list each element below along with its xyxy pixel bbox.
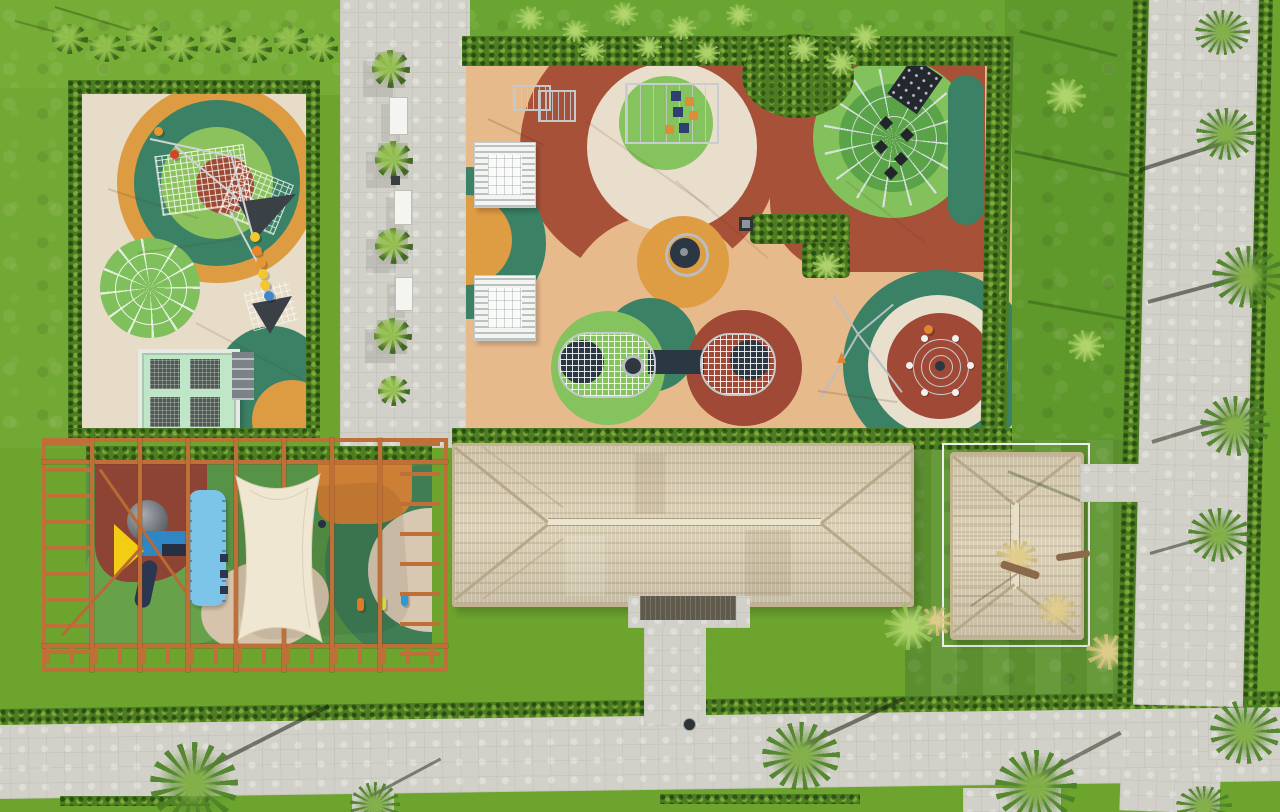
monkey-bars bbox=[538, 90, 576, 122]
waste-bin bbox=[739, 217, 753, 231]
palm-tree bbox=[1210, 700, 1280, 764]
planter-plant bbox=[375, 228, 413, 264]
play-ball-yellow bbox=[250, 232, 260, 242]
grass-tuft bbox=[580, 40, 606, 62]
hedge-island bbox=[750, 214, 850, 244]
palm-tree bbox=[1188, 508, 1250, 562]
walkway-branch bbox=[1080, 464, 1150, 502]
tropical-plant bbox=[238, 35, 272, 63]
plaza-bench bbox=[389, 97, 408, 135]
carousel-knob bbox=[967, 362, 974, 369]
swing-pole bbox=[833, 296, 859, 335]
cube-panel-navy bbox=[673, 107, 683, 117]
palm-tree bbox=[1195, 10, 1250, 55]
carousel-knob bbox=[921, 389, 928, 396]
tropical-plant bbox=[164, 34, 198, 62]
shade-sail bbox=[230, 470, 326, 646]
cube-panel-navy bbox=[671, 91, 681, 101]
teal-edge-strip bbox=[948, 75, 984, 225]
pergola-beam bbox=[378, 438, 382, 672]
main-playground bbox=[466, 60, 1012, 432]
walkway-path bbox=[1133, 0, 1259, 707]
grass-tuft bbox=[636, 36, 662, 58]
tropical-plant bbox=[52, 24, 88, 54]
climbing-cube-frame bbox=[625, 83, 719, 144]
palm-tree bbox=[762, 722, 840, 790]
entrance-recess bbox=[640, 596, 736, 620]
cube-panel-navy bbox=[679, 123, 689, 133]
right-walkway-group bbox=[1117, 0, 1280, 708]
play-ball-orange bbox=[924, 325, 933, 334]
pergola-beam bbox=[42, 460, 448, 464]
pergola-slats-bottom bbox=[46, 648, 440, 664]
dry-grass-tuft bbox=[1038, 594, 1076, 626]
canopy-panel bbox=[488, 155, 522, 196]
cube-panel-orange bbox=[689, 111, 698, 120]
palm-tree bbox=[1196, 108, 1256, 160]
small-palm bbox=[1068, 330, 1104, 362]
hedge-border bbox=[306, 80, 320, 442]
roof-hip bbox=[820, 448, 914, 525]
cube-panel-orange bbox=[665, 125, 674, 134]
trampoline-mat bbox=[190, 397, 220, 427]
small-palm bbox=[884, 604, 936, 650]
beach-house-large bbox=[452, 443, 914, 607]
palm-sprout bbox=[562, 20, 588, 42]
small-palm bbox=[1046, 78, 1086, 114]
planter-plant bbox=[372, 50, 410, 88]
trampoline-frame bbox=[138, 349, 240, 434]
palm-sprout bbox=[668, 16, 696, 40]
tropical-plant bbox=[90, 34, 124, 62]
play-ball-orange bbox=[256, 258, 266, 268]
trampoline-mat bbox=[150, 397, 180, 427]
trampoline-mat bbox=[150, 359, 180, 389]
hedge-border bbox=[68, 80, 320, 94]
carousel-knob bbox=[921, 335, 928, 342]
bin-lid bbox=[742, 220, 750, 228]
cube-panel-orange bbox=[685, 97, 694, 106]
play-ball-red bbox=[170, 150, 179, 159]
roof-hip bbox=[820, 522, 914, 599]
pergola-beam bbox=[330, 438, 334, 672]
pergola-beam bbox=[90, 438, 94, 672]
palm-sprig bbox=[812, 252, 842, 280]
carousel-hub bbox=[935, 361, 945, 371]
thatch-streak bbox=[565, 536, 605, 596]
grass-tuft bbox=[788, 36, 818, 62]
tunnel-bridge bbox=[648, 350, 704, 374]
shade-canopy bbox=[474, 142, 536, 208]
tropical-plant bbox=[274, 26, 308, 54]
palm-sprout bbox=[850, 24, 880, 50]
thatch-streak bbox=[745, 530, 791, 596]
plaza-bench bbox=[394, 190, 412, 225]
hedge-border bbox=[68, 80, 82, 442]
palm-sprout bbox=[610, 2, 638, 26]
planter-plant bbox=[374, 318, 412, 354]
play-ball-orange bbox=[252, 246, 262, 256]
grass-tuft bbox=[694, 42, 720, 64]
palm-tree bbox=[1212, 246, 1280, 308]
play-ball-yellow bbox=[258, 269, 268, 279]
toddler-rings-playground bbox=[80, 90, 312, 434]
roof-hip bbox=[454, 524, 548, 601]
roof-ridge bbox=[548, 519, 821, 525]
grass-tuft bbox=[826, 50, 856, 76]
palm-sprout bbox=[726, 4, 752, 26]
play-ball-blue bbox=[264, 291, 274, 301]
carousel-knob bbox=[906, 362, 913, 369]
planter-plant bbox=[378, 376, 410, 406]
tropical-plant bbox=[126, 24, 162, 52]
tunnel-funnel bbox=[622, 355, 644, 377]
tunnel-net bbox=[700, 333, 776, 396]
thatch-streak bbox=[635, 454, 665, 514]
carousel-knob bbox=[952, 335, 959, 342]
canopy-panel bbox=[488, 288, 522, 329]
palm-sprout bbox=[516, 6, 544, 30]
carousel-knob bbox=[952, 389, 959, 396]
tropical-plant bbox=[200, 25, 236, 53]
promenade-bin bbox=[683, 718, 696, 731]
pergola-beam bbox=[138, 438, 142, 672]
hedge-segment bbox=[660, 794, 860, 804]
play-ball-orange bbox=[154, 127, 163, 136]
pergola-beam bbox=[186, 438, 190, 672]
center-walkway bbox=[644, 626, 706, 726]
toddler-pergola bbox=[42, 438, 448, 672]
aerial-park-scene bbox=[0, 0, 1280, 812]
trampoline-steps bbox=[232, 352, 254, 400]
spinner-hub bbox=[680, 248, 688, 256]
shade-canopy bbox=[474, 275, 536, 341]
pergola-ladder-right bbox=[400, 442, 440, 664]
tropical-plant bbox=[306, 34, 338, 62]
plaza-bench bbox=[395, 277, 413, 311]
spiderweb-ring-inner bbox=[130, 268, 172, 310]
plaza-bin bbox=[391, 176, 400, 185]
trampoline-mat bbox=[190, 359, 220, 389]
play-ball-yellow bbox=[260, 280, 270, 290]
planter-plant bbox=[375, 141, 413, 179]
palm-tree bbox=[1200, 396, 1270, 456]
hedge-border bbox=[462, 36, 1012, 66]
